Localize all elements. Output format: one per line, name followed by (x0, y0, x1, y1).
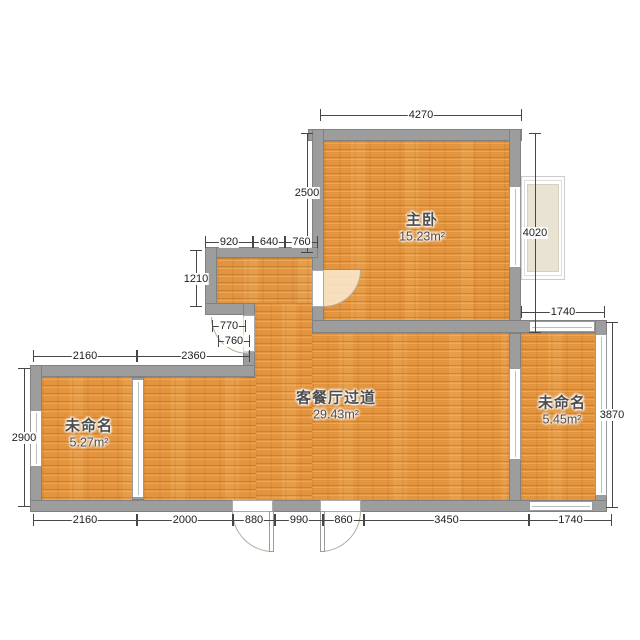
dimension-2000-15: 2000 (137, 514, 233, 526)
dimension-tick (18, 506, 30, 507)
dimension-tick (301, 133, 313, 134)
window-slider-living-to-right-room (509, 368, 521, 460)
dimension-920-3: 920 (205, 236, 253, 248)
dimension-label: 1740 (557, 514, 583, 526)
dimension-760-8: 760 (218, 335, 250, 347)
dimension-760-5: 760 (285, 236, 318, 248)
dimension-tick (521, 306, 522, 318)
dimension-tick (301, 252, 313, 253)
window-master-bedroom-east (509, 186, 521, 268)
dimension-3870-13: 3870 (606, 322, 618, 508)
room-label-master-bedroom: 主卧15.23m² (399, 209, 445, 244)
dimension-3450-19: 3450 (364, 514, 529, 526)
dimension-tick (137, 350, 138, 362)
dimension-label: 760 (224, 335, 244, 347)
room-area: 29.43m² (296, 408, 376, 422)
dimension-label: 2160 (72, 514, 98, 526)
dimension-label: 2500 (294, 187, 320, 199)
dimension-label: 880 (244, 514, 264, 526)
dimension-tick (245, 320, 246, 332)
dimension-label: 3450 (433, 514, 459, 526)
dimension-tick (33, 350, 34, 362)
dimension-tick (190, 306, 202, 307)
dimension-label: 990 (289, 514, 309, 526)
dimension-2900-11: 2900 (18, 368, 30, 507)
dimension-880-16: 880 (233, 514, 275, 526)
dimension-tick (529, 332, 541, 333)
dimension-tick (604, 306, 605, 318)
dimension-tick (205, 236, 206, 248)
dimension-label: 2000 (172, 514, 198, 526)
dimension-tick (33, 514, 34, 526)
dimension-tick (317, 236, 318, 248)
dimension-2500-1: 2500 (301, 133, 313, 253)
dimension-860-18: 860 (323, 514, 364, 526)
dimension-2360-10: 2360 (137, 350, 250, 362)
dimension-770-7: 770 (212, 320, 246, 332)
floor-living-left (144, 377, 256, 501)
window-slider-living-to-left-room (132, 379, 144, 498)
door-opening-master-bedroom-door (312, 270, 324, 307)
wall-bottom-band (30, 500, 607, 512)
dimension-640-4: 640 (253, 236, 285, 248)
room-name: 未命名 (538, 392, 586, 413)
dimension-tick (18, 368, 30, 369)
dimension-label: 920 (219, 236, 239, 248)
dimension-tick (249, 335, 250, 347)
dimension-label: 770 (219, 320, 239, 332)
dimension-label: 4020 (522, 227, 548, 239)
window-right-room-south (529, 501, 593, 511)
dimension-tick (606, 507, 618, 508)
dimension-label: 640 (259, 236, 279, 248)
dimension-tick (521, 109, 522, 121)
dimension-tick (275, 514, 276, 526)
room-name: 主卧 (399, 209, 445, 230)
dimension-1210-6: 1210 (190, 250, 202, 307)
dimension-tick (233, 514, 234, 526)
wall-left-top (30, 365, 255, 377)
dimension-label: 1210 (183, 273, 209, 285)
dimension-tick (611, 514, 612, 526)
dimension-label: 760 (291, 236, 311, 248)
dimension-tick (529, 133, 541, 134)
dimension-tick (320, 109, 321, 121)
room-name: 未命名 (65, 415, 113, 436)
dimension-tick (212, 320, 213, 332)
dimension-tick (218, 335, 219, 347)
dimension-label: 860 (333, 514, 353, 526)
room-area: 5.45m² (538, 413, 586, 427)
room-area: 15.23m² (399, 230, 445, 244)
dimension-4270-0: 4270 (320, 109, 522, 121)
room-label-unnamed-left: 未命名5.27m² (65, 415, 113, 450)
dimension-label: 2360 (180, 350, 206, 362)
dimension-label: 4270 (408, 109, 434, 121)
dimension-tick (190, 250, 202, 251)
dimension-tick (285, 236, 286, 248)
dimension-1740-12: 1740 (521, 306, 605, 318)
dimension-4020-2: 4020 (529, 133, 541, 333)
dimension-tick (529, 514, 530, 526)
dimension-tick (253, 236, 254, 248)
dimension-tick (137, 514, 138, 526)
dimension-2160-9: 2160 (33, 350, 137, 362)
dimension-tick (364, 514, 365, 526)
floor-plan: 4270250040209206407601210770760216023602… (0, 0, 640, 640)
dimension-2160-14: 2160 (33, 514, 137, 526)
dimension-label: 1740 (550, 306, 576, 318)
dimension-label: 2900 (11, 432, 37, 444)
floor-niche (217, 258, 313, 304)
dimension-990-17: 990 (275, 514, 323, 526)
room-name: 客餐厅过道 (296, 387, 376, 408)
dimension-label: 2160 (72, 350, 98, 362)
room-label-unnamed-right: 未命名5.45m² (538, 392, 586, 427)
wall-mb-top (308, 129, 522, 141)
dimension-tick (249, 350, 250, 362)
room-label-living-dining-hall: 客餐厅过道29.43m² (296, 387, 376, 422)
dimension-tick (323, 514, 324, 526)
dimension-tick (606, 322, 618, 323)
room-area: 5.27m² (65, 436, 113, 450)
dimension-1740-20: 1740 (529, 514, 612, 526)
dimension-label: 3870 (599, 409, 625, 421)
